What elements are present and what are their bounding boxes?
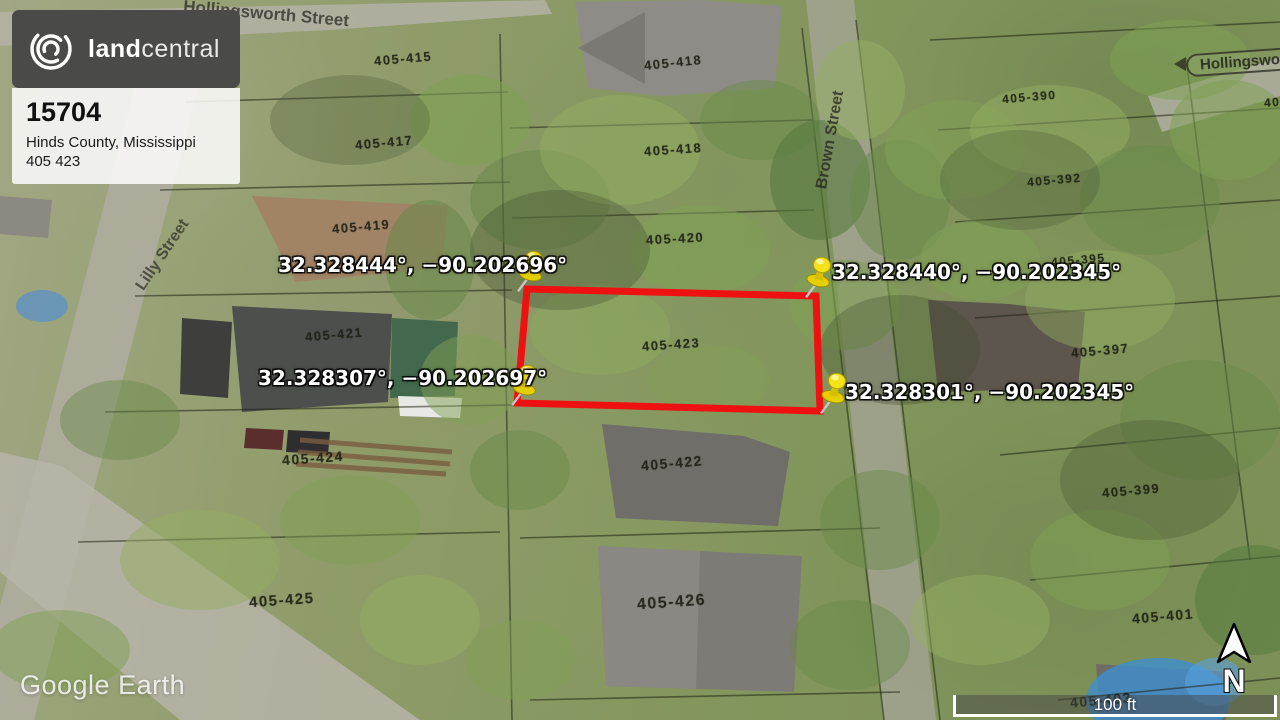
- brand-card: landcentral: [12, 10, 240, 88]
- building-roof: [602, 424, 790, 526]
- north-label: N: [1222, 663, 1245, 698]
- brand-name-central: central: [141, 35, 220, 63]
- building-roof-dark: [232, 306, 392, 412]
- building-roof-half: [598, 546, 700, 689]
- map-canvas[interactable]: Hollingsworth Street Lilly Street Brown …: [0, 0, 1280, 720]
- brand-name: landcentral: [88, 35, 220, 64]
- brand-name-land: land: [88, 35, 141, 63]
- blue-tarp-small: [16, 290, 68, 322]
- pin-coordinate-label: 32.328307°, −90.202697°: [258, 366, 547, 390]
- google-earth-watermark: Google Earth: [20, 670, 185, 701]
- car: [244, 428, 284, 450]
- pin-coordinate-label: 32.328444°, −90.202696°: [278, 253, 567, 277]
- scale-bar: 100 ft: [953, 695, 1277, 717]
- street-sign-pointer: [1174, 57, 1186, 71]
- pin-coordinate-label: 32.328301°, −90.202345°: [845, 380, 1134, 404]
- listing-card: 15704 Hinds County, Mississippi 405 423: [12, 88, 240, 184]
- scale-bar-label: 100 ft: [1094, 695, 1137, 715]
- brand-logo-icon: [26, 24, 76, 74]
- building-small: [0, 196, 52, 238]
- containers: [180, 318, 232, 398]
- pin-coordinate-label: 32.328440°, −90.202345°: [832, 260, 1121, 284]
- listing-id: 15704: [26, 98, 226, 128]
- parcel-label: 405: [1263, 94, 1280, 110]
- listing-parcel-number: 405 423: [26, 152, 226, 172]
- listing-location: Hinds County, Mississippi: [26, 133, 226, 153]
- parcel-label: 405-420: [646, 229, 705, 247]
- north-arrow-icon: N: [1212, 622, 1256, 698]
